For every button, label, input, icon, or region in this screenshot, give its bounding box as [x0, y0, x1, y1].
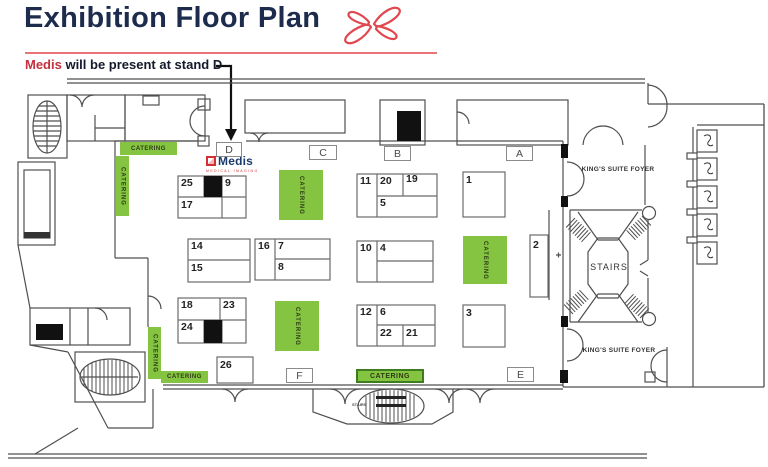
top-left-rooms: [18, 95, 205, 327]
area-label-f: F: [286, 368, 313, 383]
stairwell-bottom-left: [80, 359, 140, 396]
stairwell-bottom-center: [313, 389, 453, 424]
hall-bottom-walls: [108, 385, 563, 428]
area-label-a: A: [506, 146, 533, 161]
stairwell-top-left: [32, 101, 62, 153]
stand-note: Medis will be present at stand D: [25, 57, 222, 72]
medis-logo-tagline: MEDICAL IMAGING: [206, 169, 256, 173]
stand-18: 18: [181, 300, 193, 311]
stand-7: 7: [278, 241, 284, 252]
area-label-d: D: [216, 142, 242, 157]
kings-suite-foyer-label-top: KING'S SUITE FOYER: [576, 166, 660, 173]
catering-area-left: CATERING: [116, 156, 129, 216]
catering-area-center-top: CATERING: [279, 170, 323, 220]
stand-4: 4: [380, 243, 386, 254]
area-label-c: C: [309, 145, 337, 160]
stand-6: 6: [380, 307, 386, 318]
stand-8: 8: [278, 262, 284, 273]
catering-area-right: CATERING: [463, 236, 507, 284]
stand-23: 23: [223, 300, 235, 311]
stand-16: 16: [258, 241, 270, 252]
catering-area-bottom-left-vertical: CATERING: [148, 327, 161, 379]
stand-22: 22: [380, 328, 392, 339]
stand-11: 11: [360, 176, 371, 187]
stand-25: 25: [181, 178, 193, 189]
brand-name: Medis: [25, 57, 62, 72]
stairs-label: STAIRS: [582, 262, 636, 272]
note-text: will be present at stand D: [62, 57, 222, 72]
stand-5: 5: [380, 198, 386, 209]
stand-3: 3: [466, 308, 472, 319]
stand-2: 2: [533, 240, 539, 251]
stand-24: 24: [181, 322, 193, 333]
stand-17: 17: [181, 200, 193, 211]
stand-15: 15: [191, 263, 203, 274]
stand-19: 19: [406, 174, 418, 185]
area-label-e: E: [507, 367, 534, 382]
catering-area-center-bottom: CATERING: [275, 301, 319, 351]
stand-10: 10: [360, 243, 372, 254]
floor-plan-page: Exhibition Floor Plan Medis will be pres…: [0, 0, 768, 467]
stand-9: 9: [225, 178, 231, 189]
bottom-left-rooms: [30, 308, 145, 454]
stand-1: 1: [466, 175, 472, 186]
title-pinwheel-icon: [345, 8, 400, 43]
right-service-rooms: [687, 130, 717, 264]
stairs-label-small: STAIRS: [352, 402, 366, 407]
page-title: Exhibition Floor Plan: [24, 2, 320, 35]
catering-area-bottom-left: CATERING: [161, 371, 208, 383]
stand-14: 14: [191, 241, 203, 252]
catering-area-top-strip: CATERING: [120, 142, 177, 155]
hall-top-walls: [115, 99, 623, 146]
stand-21: 21: [406, 328, 418, 339]
area-label-b: B: [384, 146, 411, 161]
stand-d-arrow: [216, 66, 237, 141]
kings-suite-foyer-label-bottom: KING'S SUITE FOYER: [578, 347, 660, 354]
catering-area-bottom-bar: CATERING: [356, 369, 424, 383]
stand-12: 12: [360, 307, 372, 318]
stand-26: 26: [220, 360, 232, 371]
stand-20: 20: [380, 176, 392, 187]
medis-logo-icon: [206, 156, 216, 166]
